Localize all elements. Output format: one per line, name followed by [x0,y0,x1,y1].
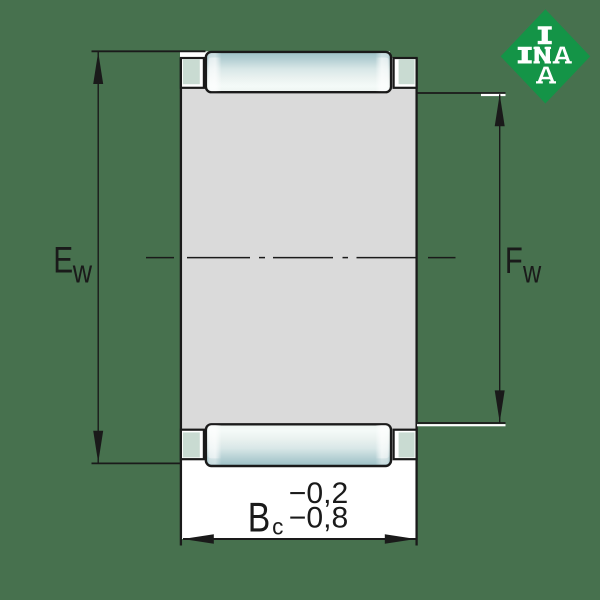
svg-text:w: w [522,253,541,289]
svg-text:−0,8: −0,8 [289,502,349,535]
svg-text:E: E [53,239,73,280]
svg-text:B: B [248,494,271,541]
svg-text:F: F [505,240,523,281]
svg-text:w: w [72,252,92,289]
svg-text:c: c [272,514,283,540]
